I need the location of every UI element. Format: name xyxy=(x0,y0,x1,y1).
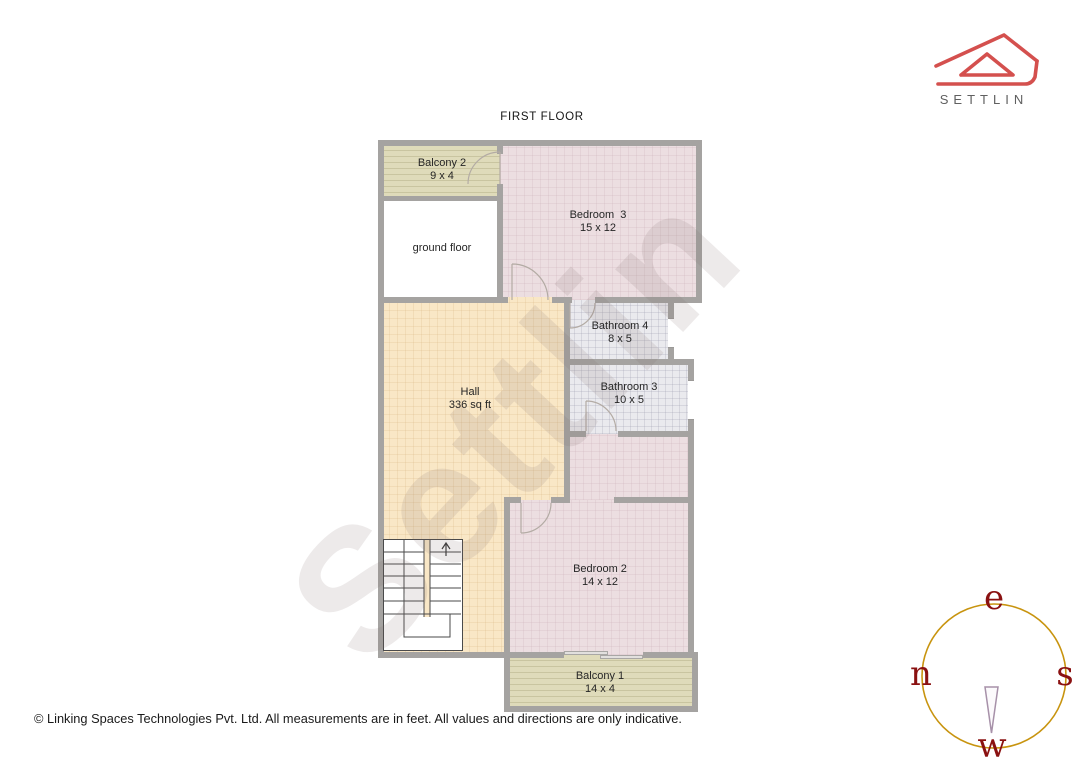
staircase xyxy=(383,539,463,651)
floor-plan-page: FIRST FLOOR SETTLIN xyxy=(0,0,1080,764)
balcony-1-slider-door xyxy=(600,655,643,659)
staircase-treads xyxy=(384,540,461,649)
room-label-bedroom-3: Bedroom 315 x 12 xyxy=(548,209,648,235)
compass-needle-icon xyxy=(985,687,998,733)
settlin-roof-icon xyxy=(928,30,1040,90)
compass-letter-top: e xyxy=(984,588,1004,618)
footer-disclaimer: © Linking Spaces Technologies Pvt. Ltd. … xyxy=(34,711,682,726)
compass-letter-left: n xyxy=(910,654,932,694)
page-title: FIRST FLOOR xyxy=(380,111,704,123)
room-label-balcony-1: Balcony 114 x 4 xyxy=(550,670,650,696)
room-bedroom-2-alcove-area xyxy=(567,434,692,500)
bathroom-3-window xyxy=(688,380,694,420)
room-label-bedroom-2: Bedroom 214 x 12 xyxy=(550,563,650,589)
room-label-balcony-2: Balcony 29 x 4 xyxy=(392,157,492,183)
room-label-ground-floor: ground floor xyxy=(392,242,492,255)
compass-rose: e n s w xyxy=(905,588,1080,764)
compass-letter-right: s xyxy=(1056,654,1073,694)
room-label-bathroom-4: Bathroom 48 x 5 xyxy=(570,320,670,346)
room-label-hall: Hall336 sq ft xyxy=(420,386,520,412)
room-label-bathroom-3: Bathroom 310 x 5 xyxy=(579,381,679,407)
compass-ring xyxy=(922,604,1066,748)
settlin-wordmark: SETTLIN xyxy=(928,92,1040,107)
settlin-logo: SETTLIN xyxy=(928,30,1040,107)
compass-letter-bottom: w xyxy=(977,726,1006,764)
